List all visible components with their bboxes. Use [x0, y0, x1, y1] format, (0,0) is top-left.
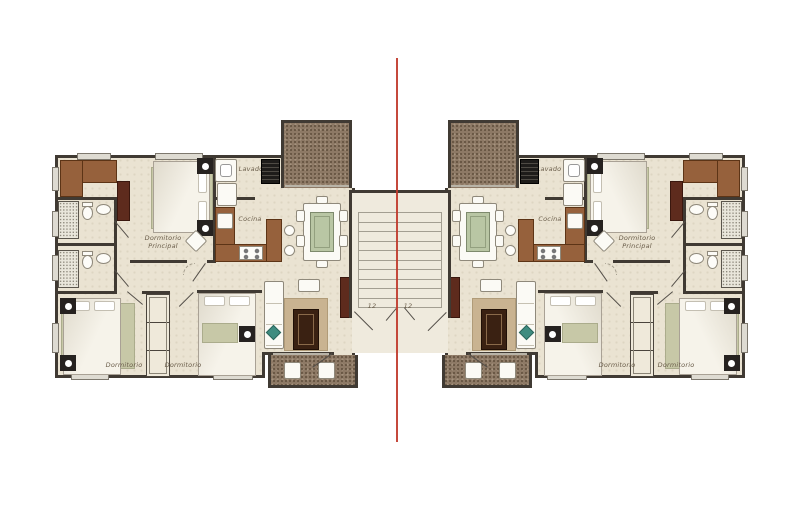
shower	[58, 201, 79, 239]
sliding-door	[285, 185, 349, 187]
stair-run-label: 12	[362, 302, 382, 310]
bar-stool	[284, 245, 295, 256]
bed-runner	[202, 323, 238, 343]
wall-segment	[683, 197, 686, 294]
sink-icon	[689, 253, 704, 264]
fridge-icon	[217, 183, 237, 206]
wall-segment	[535, 352, 538, 378]
stair-tread	[358, 260, 442, 261]
wardrobe	[60, 160, 83, 197]
toilet-icon	[82, 255, 93, 269]
stair-tread	[358, 212, 442, 213]
stair-steps	[349, 190, 451, 318]
nightstand	[724, 355, 740, 371]
room-label-text: Dormitorio	[619, 234, 656, 242]
wall-segment	[587, 260, 593, 263]
shower	[58, 250, 79, 288]
balcony	[268, 355, 358, 388]
closet-shelf	[631, 350, 653, 351]
washing-machine-icon	[563, 159, 585, 182]
room-label-bedroom: Dormitorio	[652, 361, 700, 369]
sink-icon	[689, 204, 704, 215]
room-label-laundry: Lavado	[535, 165, 563, 173]
room-label-text: Principal	[622, 242, 652, 250]
sink-icon	[96, 253, 111, 264]
wall-segment	[281, 120, 284, 188]
window	[77, 153, 111, 160]
balcony	[442, 355, 532, 388]
coffee-table	[481, 309, 507, 350]
apartment-unit-right: Dormitorio Principal Lavado Cocina	[433, 115, 753, 400]
wall-segment	[268, 385, 358, 388]
dining-chair	[495, 210, 504, 222]
wall-segment	[442, 385, 532, 388]
wall-segment	[349, 120, 352, 188]
wall-segment	[281, 120, 352, 123]
balcony-chair	[465, 362, 482, 379]
wall-segment	[355, 355, 358, 388]
balcony-chair	[284, 362, 301, 379]
dining-chair	[472, 196, 484, 204]
sink-icon	[567, 213, 583, 229]
room-label-kitchen: Cocina	[535, 215, 565, 223]
washer-drum	[568, 164, 580, 177]
pillow	[575, 296, 596, 306]
closet-shelf	[147, 350, 169, 351]
pillow	[229, 296, 250, 306]
dining-chair	[316, 260, 328, 268]
stove-icon	[537, 246, 561, 260]
nightstand	[545, 326, 561, 342]
wall-segment	[448, 120, 451, 188]
terrace	[448, 120, 519, 188]
wardrobe-door	[670, 181, 683, 221]
closet-shelf	[147, 322, 169, 323]
stair-tread	[358, 250, 442, 251]
stair-tread	[358, 241, 442, 242]
dining-chair	[296, 210, 305, 222]
fridge-icon	[563, 183, 583, 206]
stove-icon	[239, 246, 263, 260]
window	[52, 323, 59, 353]
sink-icon	[96, 204, 111, 215]
wall-segment	[268, 355, 271, 388]
wall-segment	[516, 120, 519, 188]
wall-segment	[683, 243, 745, 246]
stair-tread	[358, 298, 442, 299]
wardrobe	[717, 160, 740, 197]
terrace	[281, 120, 352, 188]
sliding-door	[471, 353, 527, 355]
nightstand	[197, 158, 213, 174]
nightstand	[239, 326, 255, 342]
grill-icon	[520, 159, 539, 184]
window	[155, 153, 203, 160]
nightstand	[60, 298, 76, 314]
stair-tread	[358, 231, 442, 232]
room-label-text: Dormitorio	[145, 234, 182, 242]
side-table	[480, 279, 502, 292]
stair-tread	[358, 269, 442, 270]
pillow	[685, 301, 706, 311]
room-label-master: Dormitorio Principal	[607, 234, 667, 250]
closet-shelf	[631, 322, 653, 323]
bed-runner	[562, 323, 598, 343]
dining-chair	[339, 210, 348, 222]
wall-segment	[613, 260, 670, 263]
wall-segment	[262, 352, 265, 378]
pillow	[94, 301, 115, 311]
sliding-door	[451, 185, 515, 187]
grill-icon	[261, 159, 280, 184]
stair-tread	[358, 279, 442, 280]
dining-table-top	[466, 212, 490, 252]
shower	[721, 250, 742, 288]
dining-chair	[452, 235, 461, 247]
kitchen-bar	[266, 219, 282, 262]
balcony-chair	[499, 362, 516, 379]
washer-drum	[220, 164, 232, 177]
pillow	[204, 296, 225, 306]
washing-machine-icon	[215, 159, 237, 182]
room-label-bedroom: Dormitorio	[100, 361, 148, 369]
sink-icon	[217, 213, 233, 229]
wall-segment	[55, 291, 117, 294]
dining-chair	[339, 235, 348, 247]
stairwell: 12 12	[349, 190, 451, 355]
window	[689, 153, 723, 160]
wall-segment	[55, 243, 117, 246]
nightstand	[724, 298, 740, 314]
dining-chair	[472, 260, 484, 268]
bar-stool	[284, 225, 295, 236]
coffee-table	[293, 309, 319, 350]
dining-table-top	[310, 212, 334, 252]
toilet-icon	[82, 206, 93, 220]
wall-segment	[207, 260, 213, 263]
stair-tread	[358, 288, 442, 289]
symmetry-axis-line	[396, 58, 398, 442]
window	[597, 153, 645, 160]
apartment-unit-left: Dormitorio Principal Lavado Cocina	[47, 115, 367, 400]
nightstand	[587, 158, 603, 174]
wall-segment	[529, 355, 532, 388]
wall-segment	[683, 291, 745, 294]
wall-segment	[442, 355, 445, 388]
wardrobe-door	[117, 181, 130, 221]
room-label-kitchen: Cocina	[235, 215, 265, 223]
bar-stool	[505, 245, 516, 256]
toilet-icon	[707, 255, 718, 269]
dining-chair	[452, 210, 461, 222]
wall-segment	[130, 260, 187, 263]
kitchen-bar	[518, 219, 534, 262]
toilet-icon	[707, 206, 718, 220]
balcony-chair	[318, 362, 335, 379]
window	[52, 167, 59, 191]
stair-run-label: 12	[398, 302, 418, 310]
dining-chair	[495, 235, 504, 247]
dining-chair	[316, 196, 328, 204]
floor-plan-canvas: Dormitorio Principal Lavado Cocina	[0, 0, 800, 507]
bar-stool	[505, 225, 516, 236]
wall-segment	[448, 120, 519, 123]
window	[741, 211, 748, 237]
window	[741, 323, 748, 353]
room-label-bedroom: Dormitorio	[593, 361, 641, 369]
room-label-text: Principal	[148, 242, 178, 250]
dining-chair	[296, 235, 305, 247]
window	[741, 167, 748, 191]
window	[741, 255, 748, 281]
nightstand	[60, 355, 76, 371]
wall-segment	[55, 197, 117, 200]
room-label-bedroom: Dormitorio	[159, 361, 207, 369]
wall-segment	[683, 197, 745, 200]
room-label-master: Dormitorio Principal	[133, 234, 193, 250]
shower	[721, 201, 742, 239]
pillow	[550, 296, 571, 306]
sliding-door	[273, 353, 329, 355]
stair-tread	[358, 222, 442, 223]
side-table	[298, 279, 320, 292]
